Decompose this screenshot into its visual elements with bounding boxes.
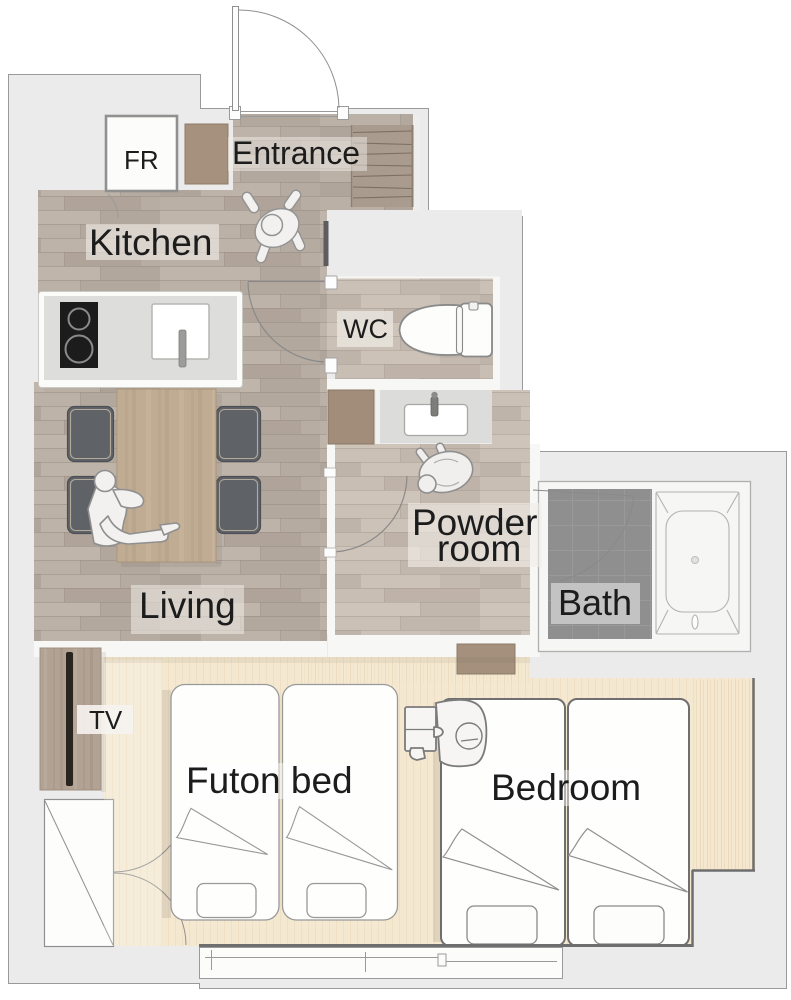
- svg-text:FR: FR: [124, 145, 159, 175]
- svg-text:Kitchen: Kitchen: [89, 222, 212, 263]
- svg-text:Bath: Bath: [558, 582, 632, 623]
- svg-text:Living: Living: [139, 585, 236, 626]
- svg-text:Bedroom: Bedroom: [491, 767, 641, 808]
- svg-text:room: room: [437, 528, 521, 569]
- svg-text:TV: TV: [89, 705, 123, 735]
- svg-text:WC: WC: [343, 314, 388, 344]
- svg-text:Entrance: Entrance: [232, 135, 360, 171]
- svg-text:Futon bed: Futon bed: [186, 760, 353, 801]
